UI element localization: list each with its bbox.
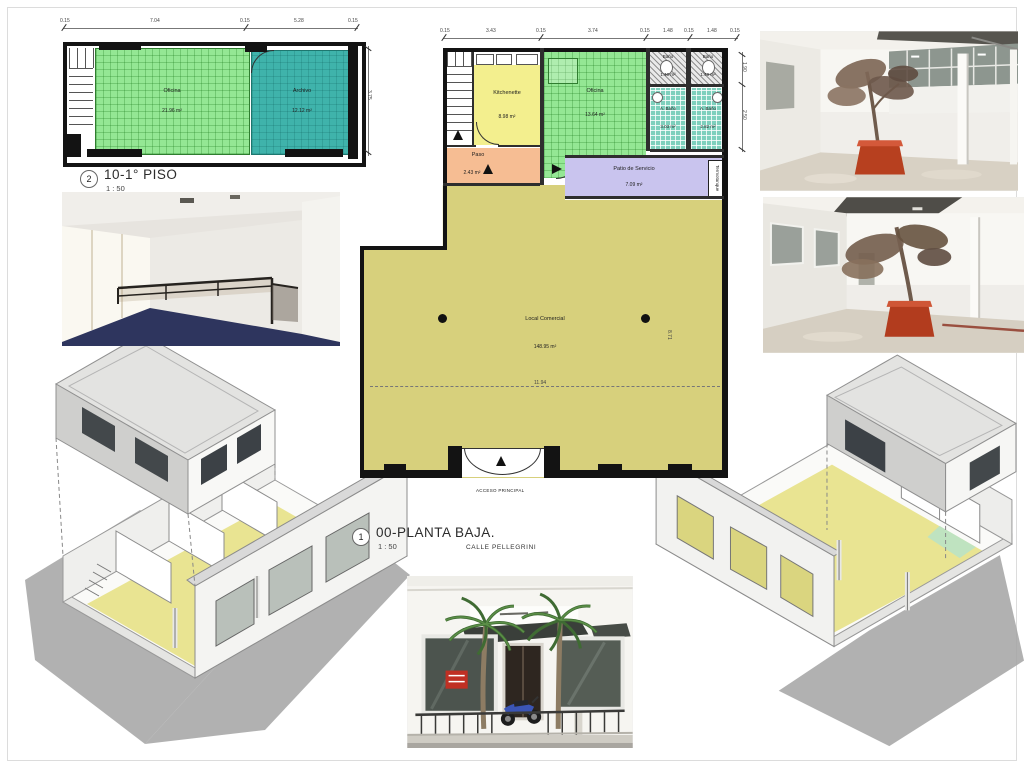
facade-photo-art — [407, 576, 633, 748]
dim-label: 0.15 — [640, 28, 650, 34]
first-floor-plan: 0.15 7.04 0.15 5.28 0.15 Oficina 21.96 m… — [60, 12, 390, 202]
dim-label: 1.48 — [663, 28, 673, 34]
plan-outline: Oficina 21.96 m² Archivo 12.12 m² — [63, 42, 366, 167]
dim-label: 3.74 — [588, 28, 598, 34]
room-label: Paso — [448, 152, 508, 159]
kitchen-sink — [496, 54, 512, 65]
dim-label: 2.50 — [741, 110, 747, 120]
column — [438, 314, 447, 323]
sink-icon — [652, 92, 663, 103]
presentation-sheet: 0.15 7.04 0.15 5.28 0.15 Oficina 21.96 m… — [0, 0, 1024, 768]
entrance-arrow-icon — [496, 456, 506, 466]
plan-title: 00-PLANTA BAJA. — [376, 525, 495, 540]
up-arrow-icon — [453, 130, 463, 140]
room-area: 8.98 m² — [472, 114, 542, 120]
room-label: Oficina — [560, 88, 630, 95]
room-label: Oficina — [137, 88, 207, 95]
stair — [69, 68, 93, 132]
room-label: A. Baño — [678, 106, 738, 112]
dimension-line — [63, 28, 358, 29]
room-area: 148.95 m² — [510, 344, 580, 350]
mezzanine-photo-art — [62, 192, 340, 346]
interior-photo-2 — [763, 197, 1024, 353]
plan-scale: 1 : 50 — [378, 542, 397, 551]
dim-label: 0.15 — [240, 18, 250, 24]
room-label: Kitchenette — [472, 90, 542, 97]
plan-scale: 1 : 50 — [106, 184, 125, 193]
room-label: Patio de Servicio — [599, 166, 669, 173]
interior-photo-2-art — [763, 197, 1024, 353]
dim-label: 3.43 — [486, 28, 496, 34]
plan-title: 10-1° PISO — [104, 167, 177, 182]
plan-ref-bubble: 1 — [352, 528, 370, 546]
right-arrow-icon — [552, 164, 562, 174]
kitchen-stove — [516, 54, 538, 65]
room-patio-servicio — [565, 158, 724, 198]
street-label: CALLE PELLEGRINI — [466, 544, 536, 551]
column — [641, 314, 650, 323]
interior-photo-1-art — [760, 31, 1018, 191]
dim-label: 0.15 — [684, 28, 694, 34]
dim-label: 0.15 — [440, 28, 450, 34]
room-area: 2.43 m² — [442, 170, 502, 176]
facade-photo — [407, 576, 633, 748]
room-label: Archivo — [267, 88, 337, 95]
dim-label: 5.28 — [294, 18, 304, 24]
room-label: Local Comercial — [510, 316, 580, 323]
stair — [447, 66, 472, 133]
dim-label: 1.90 — [741, 62, 747, 72]
interior-photo-1 — [760, 31, 1018, 191]
termotanque-label: Termotanque — [715, 161, 720, 195]
dim-label: 0.15 — [536, 28, 546, 34]
mezzanine-photo — [62, 192, 340, 346]
ground-floor-plan: 0.15 3.43 0.15 3.74 0.15 1.48 0.15 1.48 … — [350, 18, 760, 563]
dim-label: 8.71 — [666, 330, 672, 340]
room-oficina — [95, 48, 250, 155]
room-area: 2.82 m² — [678, 124, 738, 130]
room-area: 12.12 m² — [267, 108, 337, 114]
dim-label: 11.94 — [532, 380, 548, 386]
dim-label: 0.15 — [730, 28, 740, 34]
plan-ref-bubble: 2 — [80, 170, 98, 188]
room-area: 13.64 m² — [560, 112, 630, 118]
stair — [447, 52, 472, 66]
room-area: 7.09 m² — [599, 182, 669, 188]
dim-label: 7.04 — [150, 18, 160, 24]
dim-label: 0.15 — [60, 18, 70, 24]
kitchen-counter — [476, 54, 494, 65]
room-area: 1.40 m² — [678, 72, 738, 78]
room-label: Baño — [678, 54, 738, 60]
office-furniture — [548, 58, 578, 84]
room-area: 21.96 m² — [137, 108, 207, 114]
dim-label: 1.48 — [707, 28, 717, 34]
access-label: ACCESO PRINCIPAL — [476, 488, 524, 493]
